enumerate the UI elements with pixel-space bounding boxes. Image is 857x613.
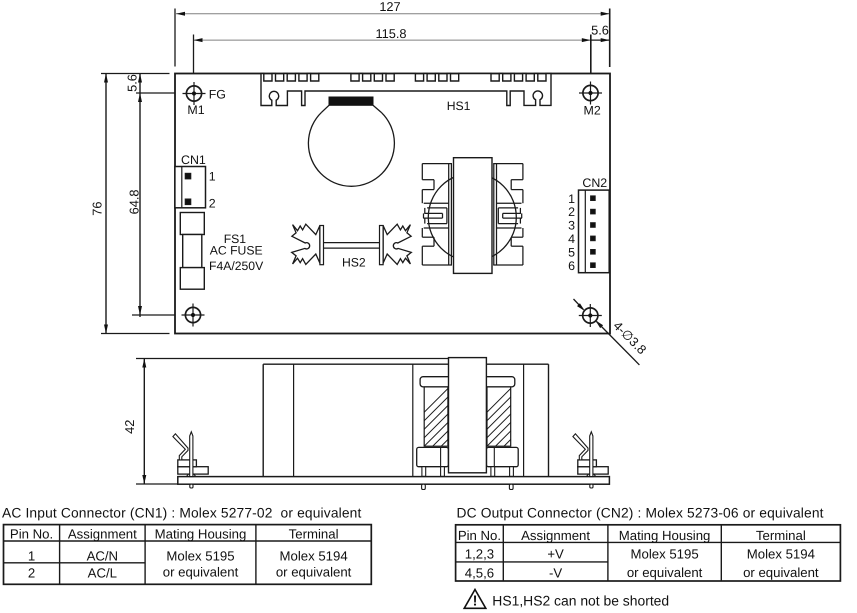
svg-text:1: 1 bbox=[28, 549, 35, 564]
svg-text:Molex 5194: Molex 5194 bbox=[747, 547, 815, 562]
svg-text:Terminal: Terminal bbox=[756, 528, 806, 543]
svg-text:M2: M2 bbox=[584, 104, 601, 118]
svg-text:FG: FG bbox=[209, 88, 226, 102]
svg-text:2: 2 bbox=[568, 205, 575, 219]
svg-text:CN1: CN1 bbox=[181, 153, 206, 167]
svg-text:or equivalent: or equivalent bbox=[163, 564, 239, 579]
svg-text:Molex 5194: Molex 5194 bbox=[280, 548, 348, 563]
svg-text:1: 1 bbox=[568, 192, 575, 206]
svg-text:64.8: 64.8 bbox=[127, 189, 142, 214]
svg-text:or equivalent: or equivalent bbox=[276, 564, 352, 579]
svg-text:Pin No.: Pin No. bbox=[458, 528, 501, 543]
svg-text:Assignment: Assignment bbox=[521, 528, 590, 543]
svg-text:4,5,6: 4,5,6 bbox=[465, 566, 494, 581]
svg-text:HS1: HS1 bbox=[447, 99, 471, 113]
svg-text:Assignment: Assignment bbox=[68, 527, 137, 542]
svg-text:115.8: 115.8 bbox=[375, 26, 406, 41]
svg-text:DC Output Connector (CN2) : Mo: DC Output Connector (CN2) : Molex 5273-0… bbox=[457, 506, 824, 521]
svg-text:Molex 5195: Molex 5195 bbox=[166, 548, 234, 563]
svg-text:CN2: CN2 bbox=[582, 176, 607, 190]
svg-text:AC/L: AC/L bbox=[88, 566, 117, 581]
svg-text:1,2,3: 1,2,3 bbox=[465, 547, 494, 562]
svg-text:HS1,HS2 can not be shorted: HS1,HS2 can not be shorted bbox=[492, 592, 669, 608]
svg-text:4: 4 bbox=[568, 232, 575, 246]
svg-text:Pin No.: Pin No. bbox=[10, 527, 53, 542]
svg-text:Terminal: Terminal bbox=[289, 527, 339, 542]
svg-text:or equivalent: or equivalent bbox=[743, 565, 819, 580]
svg-text:!: ! bbox=[473, 594, 478, 610]
svg-text:5.6: 5.6 bbox=[124, 74, 139, 92]
svg-text:2: 2 bbox=[209, 197, 216, 211]
svg-text:AC FUSE: AC FUSE bbox=[210, 243, 263, 257]
svg-text:Mating Housing: Mating Housing bbox=[619, 528, 711, 543]
svg-text:5: 5 bbox=[568, 245, 575, 259]
svg-text:AC Input Connector (CN1) : Mol: AC Input Connector (CN1) : Molex 5277-02… bbox=[2, 505, 362, 520]
svg-text:3: 3 bbox=[568, 219, 575, 233]
svg-text:or equivalent: or equivalent bbox=[627, 565, 703, 580]
svg-text:42: 42 bbox=[122, 420, 137, 434]
svg-text:HS2: HS2 bbox=[342, 256, 366, 270]
svg-text:+V: +V bbox=[547, 547, 564, 562]
svg-text:4-∅3.8: 4-∅3.8 bbox=[610, 318, 649, 357]
svg-text:76: 76 bbox=[89, 201, 104, 215]
svg-text:5.6: 5.6 bbox=[591, 22, 609, 37]
svg-text:M1: M1 bbox=[187, 103, 204, 117]
svg-text:Mating Housing: Mating Housing bbox=[155, 527, 247, 542]
svg-text:2: 2 bbox=[28, 566, 35, 581]
svg-text:AC/N: AC/N bbox=[87, 549, 119, 564]
svg-text:-V: -V bbox=[549, 566, 562, 581]
svg-text:F4A/250V: F4A/250V bbox=[209, 259, 264, 273]
svg-text:Molex 5195: Molex 5195 bbox=[631, 547, 699, 562]
svg-text:6: 6 bbox=[568, 259, 575, 273]
svg-text:127: 127 bbox=[379, 0, 400, 14]
svg-text:1: 1 bbox=[209, 170, 216, 184]
